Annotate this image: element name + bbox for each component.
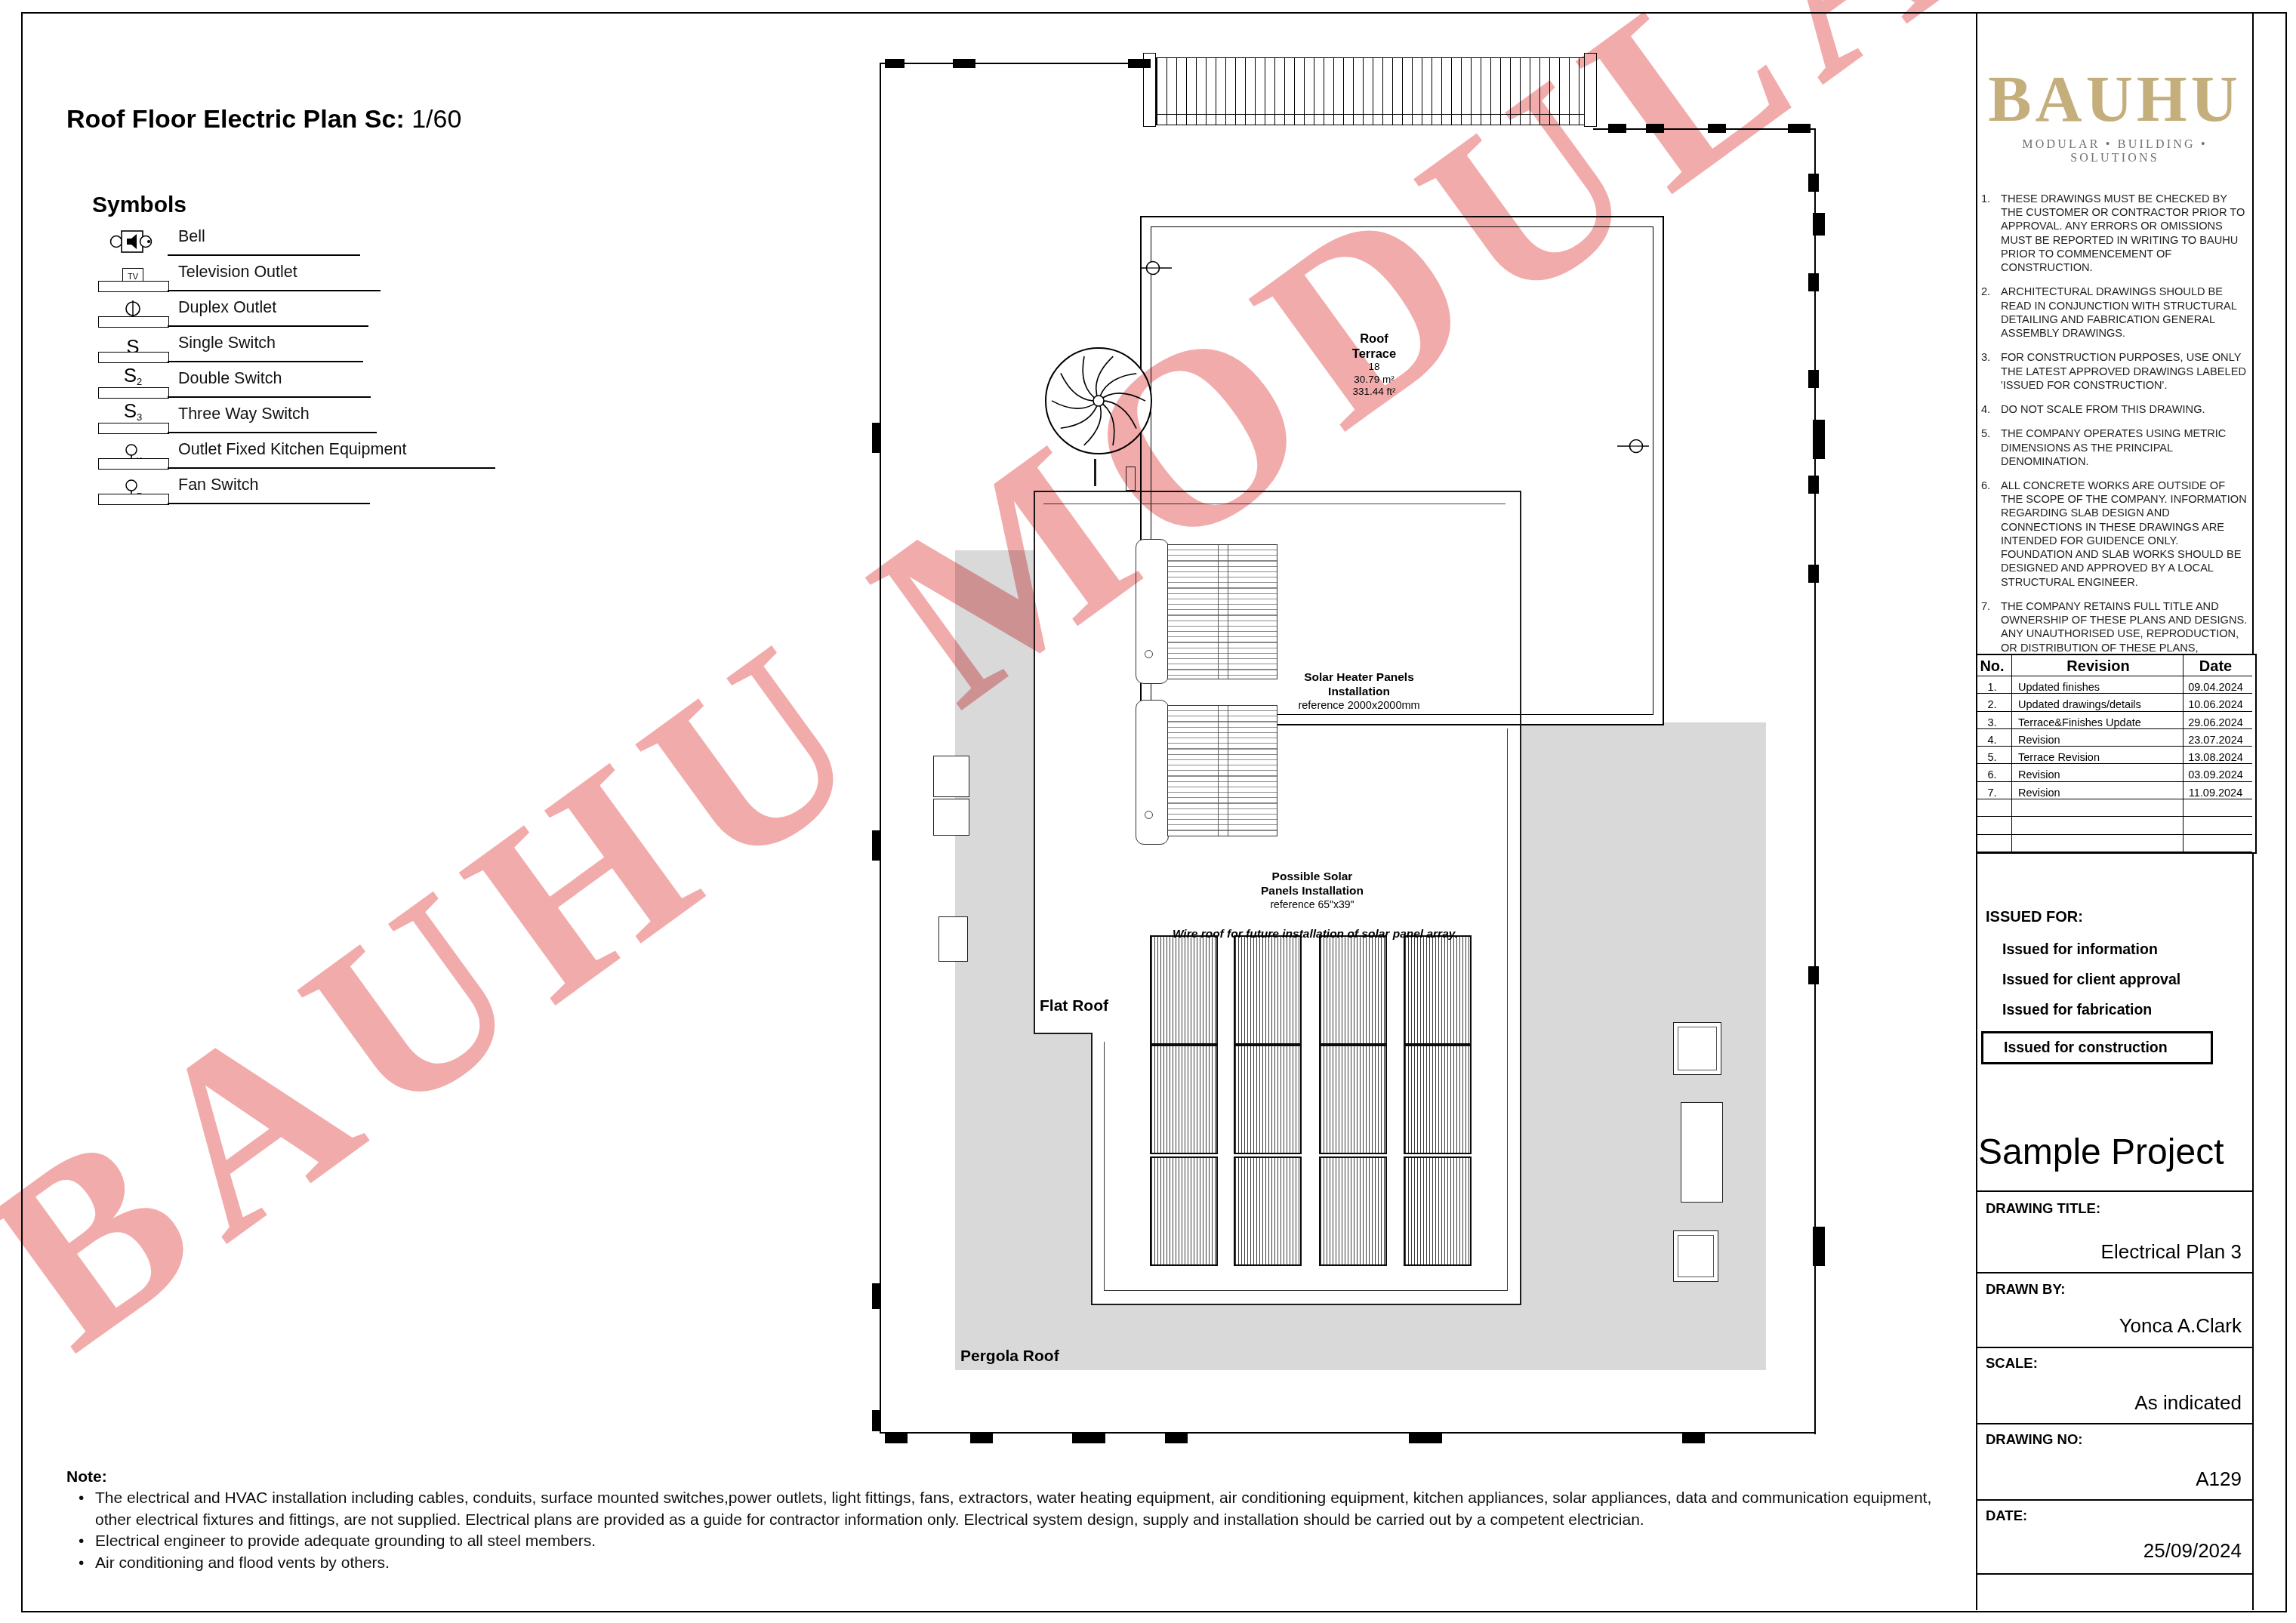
footer-note-bullet: Air conditioning and flood vents by othe… (66, 1552, 1946, 1574)
solar-zone-inner-line-bottom (1104, 1290, 1508, 1291)
revision-cell: 2. (1977, 694, 2012, 711)
issued-for-item: Issued for fabrication (2002, 1001, 2251, 1018)
general-note: 5.THE COMPANY OPERATES USING METRIC DIME… (1981, 427, 2248, 468)
wall-tick (1813, 420, 1825, 459)
wall-tick (1788, 124, 1811, 133)
possible-solar-l2: Panels Installation (1261, 884, 1364, 898)
revision-cell: 13.08.2024 (2184, 747, 2252, 764)
solar-panel (1404, 1156, 1472, 1266)
solar-heater-tank-2 (1136, 700, 1169, 845)
room-wall-top (1034, 491, 1521, 492)
flat-roof-label: Flat Roof (1040, 996, 1108, 1015)
wall-tick (872, 1283, 881, 1309)
pergola-roof-label: Pergola Roof (960, 1347, 1059, 1365)
wall-tick (1808, 476, 1819, 494)
wall-tick (1682, 1433, 1705, 1443)
wall-tick (1708, 124, 1726, 133)
possible-solar-label: Possible Solar Panels Installation refer… (1261, 870, 1364, 911)
footer-note: Note: The electrical and HVAC installati… (66, 1467, 1946, 1573)
roof-fan-icon (1042, 344, 1155, 457)
roof-terrace-label: Roof Terrace 18 30.79 m² 331.44 ft² (1352, 331, 1396, 399)
roof-terrace-number: 18 (1352, 361, 1396, 373)
solar-heater-l3: reference 2000x2000mm (1298, 699, 1419, 713)
room-inner-line-top (1043, 504, 1505, 504)
revision-cell: 4. (1977, 729, 2012, 747)
revision-cell: Revision (2012, 655, 2184, 676)
general-note: 3.FOR CONSTRUCTION PURPOSES, USE ONLY TH… (1981, 350, 2248, 392)
solar-panel (1319, 1045, 1387, 1154)
titleblock-value: A129 (2196, 1467, 2242, 1491)
wall-tick (872, 830, 881, 861)
louvre-end-cap-right (1584, 53, 1597, 127)
footer-note-bullet: The electrical and HVAC installation inc… (66, 1487, 1946, 1530)
revision-cell: Revision (2012, 782, 2184, 799)
wall-tick (1128, 59, 1151, 68)
roof-unit (1673, 1230, 1718, 1282)
wall-box (933, 756, 969, 797)
solar-panel (1404, 935, 1472, 1045)
plan-outline-bottom (880, 1432, 1816, 1434)
revision-cell: 29.06.2024 (2184, 712, 2252, 729)
roof-unit (1673, 1022, 1721, 1075)
footer-note-heading: Note: (66, 1467, 1946, 1486)
wall-tick (1646, 124, 1664, 133)
revision-cell: No. (1977, 655, 2012, 676)
fan-wall-bracket (1126, 467, 1136, 491)
revision-cell: Revision (2012, 764, 2184, 781)
solar-heater-panel-1 (1167, 544, 1277, 679)
solar-heater-panel-2 (1167, 705, 1277, 836)
solar-panel (1234, 1045, 1302, 1154)
drawing-sheet: { "sheet": { "title": "Roof Floor Electr… (0, 0, 2296, 1623)
revision-cell: 03.09.2024 (2184, 764, 2252, 781)
wall-box (938, 916, 968, 962)
revision-cell: 6. (1977, 764, 2012, 781)
duplex-outlet-symbol (1617, 438, 1649, 454)
titleblock-line (1976, 1499, 2254, 1501)
room-wall-step (1034, 1033, 1093, 1034)
wall-box (933, 799, 969, 836)
wall-tick (1808, 370, 1819, 388)
bauhu-logo-tagline: MODULAR • BUILDING • SOLUTIONS (1976, 137, 2254, 165)
issued-for-heading: ISSUED FOR: (1986, 908, 2251, 925)
revision-cell (2184, 835, 2252, 852)
revision-cell: Updated finishes (2012, 676, 2184, 694)
revision-cell (2012, 799, 2184, 817)
wall-tick (1808, 174, 1819, 192)
roof-terrace-area-m2: 30.79 m² (1352, 374, 1396, 386)
footer-note-bullet: Electrical engineer to provide adequate … (66, 1530, 1946, 1552)
roof-terrace-area-ft2: 331.44 ft² (1352, 386, 1396, 398)
roof-terrace-line1: Roof (1352, 331, 1396, 346)
solar-panel (1319, 935, 1387, 1045)
revision-cell (1977, 799, 2012, 817)
issued-for-item-selected: Issued for construction (1981, 1031, 2213, 1064)
duplex-outlet-symbol (1140, 260, 1172, 276)
solar-zone-inner-line-left (1104, 1042, 1105, 1291)
revision-cell: Date (2184, 655, 2252, 676)
revision-cell: Terrace&Finishes Update (2012, 712, 2184, 729)
revision-table: No.RevisionDate1.Updated finishes09.04.2… (1976, 654, 2257, 854)
revision-cell: 10.06.2024 (2184, 694, 2252, 711)
issued-for-item: Issued for information (2002, 941, 2251, 958)
wall-tick (872, 423, 881, 453)
general-note: 4.DO NOT SCALE FROM THIS DRAWING. (1981, 402, 2248, 416)
titleblock-value: 25/09/2024 (2143, 1539, 2242, 1563)
titleblock-line (1976, 1272, 2254, 1273)
wire-roof-note: Wire roof for future installation of sol… (1173, 927, 1458, 941)
titleblock-label: DRAWN BY: (1986, 1281, 2066, 1298)
solar-heater-l2: Installation (1298, 685, 1419, 699)
titleblock-value: Yonca A.Clark (2119, 1314, 2242, 1338)
room-wall-left (1034, 491, 1035, 1034)
floor-plan: Roof Terrace 18 30.79 m² 331.44 ft² Sola… (0, 0, 2296, 1623)
room-wall-right (1520, 491, 1521, 1305)
solar-heater-label: Solar Heater Panels Installation referen… (1298, 670, 1419, 713)
plan-outline-top-right (1593, 128, 1816, 130)
revision-cell: Revision (2012, 729, 2184, 747)
revision-cell: 7. (1977, 782, 2012, 799)
wall-tick (953, 59, 975, 68)
wall-tick (970, 1433, 993, 1443)
solar-panel (1404, 1045, 1472, 1154)
titleblock-line (1976, 1347, 2254, 1348)
roof-terrace-line2: Terrace (1352, 346, 1396, 361)
revision-cell (2184, 817, 2252, 834)
solar-panel (1319, 1156, 1387, 1266)
wall-tick (885, 59, 905, 68)
plan-outline-left (880, 63, 881, 1434)
solar-zone-wall-bottom (1091, 1304, 1521, 1305)
wall-tick (1808, 273, 1819, 291)
revision-cell (1977, 817, 2012, 834)
solar-panel (1150, 935, 1218, 1045)
general-note: 6.ALL CONCRETE WORKS ARE OUTSIDE OF THE … (1981, 479, 2248, 589)
general-note: 1.THESE DRAWINGS MUST BE CHECKED BY THE … (1981, 192, 2248, 274)
revision-cell: 11.09.2024 (2184, 782, 2252, 799)
revision-cell (1977, 835, 2012, 852)
revision-cell (2012, 835, 2184, 852)
titleblock-value: As indicated (2134, 1391, 2242, 1415)
solar-panel (1234, 935, 1302, 1045)
solar-heater-tank-1 (1136, 539, 1169, 684)
titleblock-line (1976, 1573, 2254, 1575)
revision-cell: Updated drawings/details (2012, 694, 2184, 711)
roof-unit (1681, 1102, 1723, 1203)
revision-cell: 3. (1977, 712, 2012, 729)
wall-tick (1409, 1433, 1442, 1443)
revision-cell: 09.04.2024 (2184, 676, 2252, 694)
wall-tick (1813, 1227, 1825, 1266)
issued-for-item: Issued for client approval (2002, 971, 2251, 988)
revision-cell (2184, 799, 2252, 817)
wall-tick (1072, 1433, 1105, 1443)
revision-cell: 1. (1977, 676, 2012, 694)
project-name: Sample Project (1978, 1131, 2248, 1172)
titleblock-value: Electrical Plan 3 (2101, 1240, 2242, 1264)
bauhu-logo: BAUHU (1976, 66, 2254, 131)
titleblock-line (1976, 1423, 2254, 1424)
solar-zone-wall-left (1091, 1033, 1093, 1305)
roof-louvre-hatch (1156, 57, 1596, 125)
titleblock-line (1976, 1190, 2254, 1192)
titleblock-label: DRAWING TITLE: (1986, 1200, 2100, 1217)
possible-solar-l1: Possible Solar (1261, 870, 1364, 884)
solar-panel (1234, 1156, 1302, 1266)
wall-tick (1808, 565, 1819, 583)
revision-cell: 23.07.2024 (2184, 729, 2252, 747)
titleblock-label: SCALE: (1986, 1355, 2038, 1372)
room-inner-line-right (1507, 728, 1508, 1291)
fan-stem-line (1094, 459, 1096, 486)
plan-outline-top-left (880, 63, 1165, 64)
issued-for-section: ISSUED FOR: Issued for informationIssued… (1986, 908, 2251, 1077)
wall-tick (1813, 213, 1825, 236)
wall-tick (1608, 124, 1626, 133)
general-notes-list: 1.THESE DRAWINGS MUST BE CHECKED BY THE … (1981, 192, 2248, 707)
revision-cell: 5. (1977, 747, 2012, 764)
possible-solar-l3: reference 65"x39" (1261, 898, 1364, 911)
wall-tick (872, 1410, 881, 1431)
revision-cell (2012, 817, 2184, 834)
solar-heater-l1: Solar Heater Panels (1298, 670, 1419, 685)
titleblock-label: DRAWING NO: (1986, 1431, 2082, 1448)
solar-panel (1150, 1156, 1218, 1266)
general-note: 2.ARCHITECTURAL DRAWINGS SHOULD BE READ … (1981, 285, 2248, 340)
wall-tick (885, 1433, 908, 1443)
solar-panel (1150, 1045, 1218, 1154)
wall-tick (1165, 1433, 1188, 1443)
titleblock-label: DATE: (1986, 1508, 2027, 1524)
wall-tick (1808, 966, 1819, 984)
revision-cell: Terrace Revision (2012, 747, 2184, 764)
